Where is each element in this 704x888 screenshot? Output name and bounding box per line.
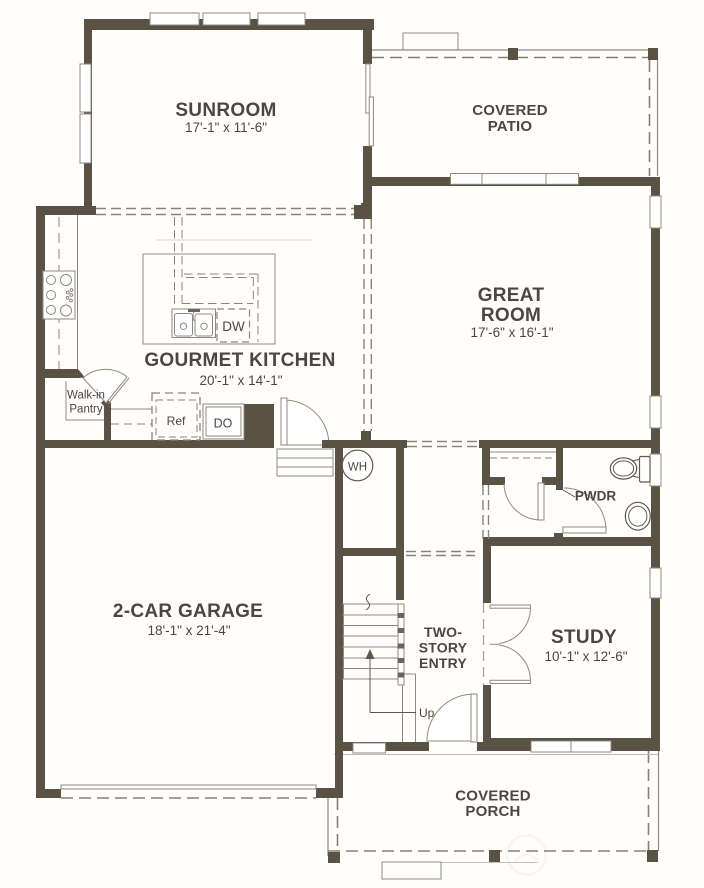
svg-text:17'-1" x 11'-6": 17'-1" x 11'-6" (185, 120, 267, 135)
svg-text:PWDR: PWDR (575, 489, 616, 504)
svg-text:Ref: Ref (167, 414, 186, 428)
svg-text:COVERED: COVERED (472, 102, 548, 119)
svg-text:GOURMET KITCHEN: GOURMET KITCHEN (144, 350, 335, 371)
svg-text:SUNROOM: SUNROOM (175, 100, 276, 121)
svg-text:WH: WH (348, 462, 367, 474)
svg-text:PORCH: PORCH (465, 803, 520, 820)
svg-text:GREAT: GREAT (478, 285, 545, 306)
svg-text:2-CAR GARAGE: 2-CAR GARAGE (113, 601, 263, 622)
svg-text:10'-1" x 12'-6": 10'-1" x 12'-6" (544, 649, 627, 664)
svg-text:TWO-: TWO- (424, 624, 462, 640)
svg-text:18'-1" x 21'-4": 18'-1" x 21'-4" (147, 623, 230, 638)
svg-text:STUDY: STUDY (551, 627, 617, 648)
svg-text:COVERED: COVERED (455, 788, 531, 805)
svg-text:17'-6" x 16'-1": 17'-6" x 16'-1" (470, 325, 553, 340)
svg-text:ROOM: ROOM (481, 305, 541, 326)
svg-text:20'-1" x 14'-1": 20'-1" x 14'-1" (199, 373, 282, 388)
svg-text:PATIO: PATIO (488, 118, 533, 135)
svg-text:STORY: STORY (419, 640, 468, 656)
svg-text:Walk-in: Walk-in (67, 390, 105, 402)
svg-text:Pantry: Pantry (69, 404, 102, 416)
svg-text:DO: DO (214, 417, 233, 431)
svg-text:DW: DW (222, 319, 245, 334)
svg-text:Up: Up (419, 706, 435, 720)
svg-text:ENTRY: ENTRY (419, 655, 467, 671)
